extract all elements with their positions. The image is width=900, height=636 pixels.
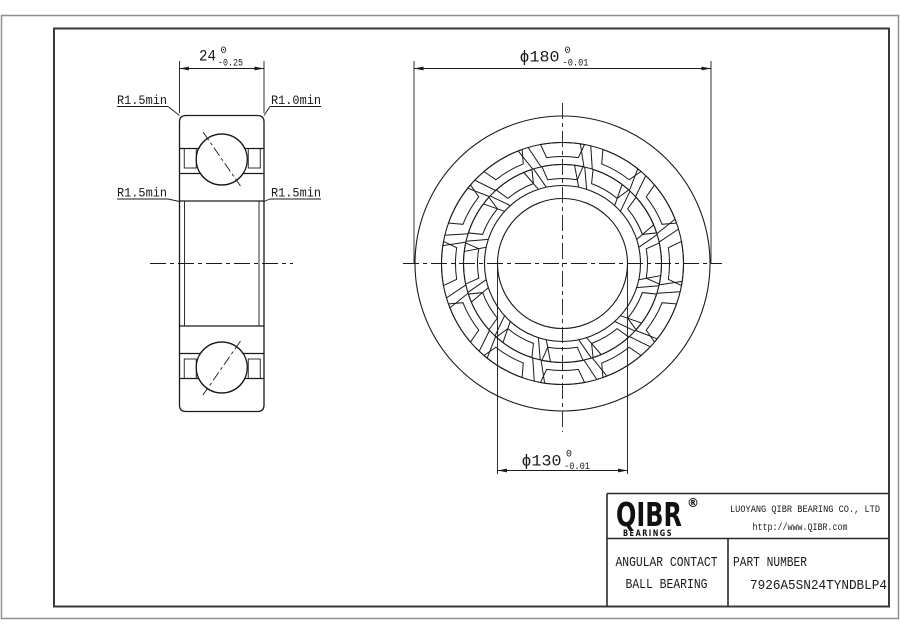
bore-dim-tol-upper: 0 <box>566 450 572 461</box>
part-number-value: 7926A5SN24TYNDBLP4 <box>750 579 887 594</box>
od-dim-tol-upper: 0 <box>565 46 571 57</box>
brand-tagline: BEARINGS <box>623 529 673 539</box>
product-type-line1: ANGULAR CONTACT <box>616 556 718 571</box>
company-website: http://www.QIBR.com <box>753 522 848 534</box>
bore-dim-tol-lower: -0.01 <box>564 462 590 473</box>
technical-drawing: 24 0 -0.25 ϕ180 0 -0.01 ϕ130 0 -0.01 R1.… <box>0 0 900 636</box>
callout-mid-left: R1.5min <box>117 186 167 201</box>
registered-mark: ® <box>687 496 699 510</box>
callout-mid-right: R1.5min <box>271 186 321 201</box>
company-name: LUOYANG QIBR BEARING CO., LTD <box>730 504 880 516</box>
width-dim-tol-lower: -0.25 <box>218 59 243 70</box>
od-dim-tol-lower: -0.01 <box>563 59 589 70</box>
width-dim-tol-upper: 0 <box>221 46 227 57</box>
part-number-label: PART NUMBER <box>733 556 807 571</box>
drawing-page: 24 0 -0.25 ϕ180 0 -0.01 ϕ130 0 -0.01 R1.… <box>0 0 900 636</box>
od-dim-value: ϕ180 <box>520 49 560 67</box>
callout-top-left: R1.5min <box>117 93 167 108</box>
product-type-line2: BALL BEARING <box>626 578 708 593</box>
width-dim-value: 24 <box>199 48 216 66</box>
callout-top-right: R1.0min <box>271 93 321 108</box>
bore-dim-value: ϕ130 <box>522 453 562 471</box>
